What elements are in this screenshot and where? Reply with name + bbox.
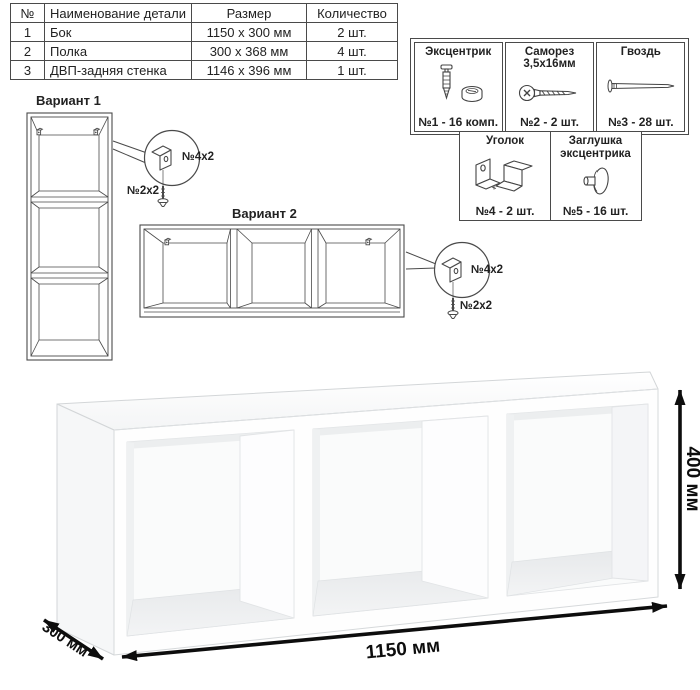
column-header-name: Наименование детали [45,4,192,23]
nail-icon [604,77,678,95]
variant2-title: Вариант 2 [232,206,297,221]
part-size: 1150 x 300 мм [192,23,307,42]
shelf-left-face [57,404,114,655]
callout2-screw-label: №2х2 [460,300,492,312]
table-row: 2 Полка 300 x 368 мм 4 шт. [11,42,398,61]
shelf-3d-render [57,372,658,655]
height-dimension-label: 400 мм [681,439,700,519]
screw-detail-icon [448,298,458,319]
screw-detail-icon [158,186,168,207]
callout1-screw-label: №2х2 [127,185,159,197]
hardware-title: Уголок [486,135,524,148]
assembly-instruction-sheet: № Наименование детали Размер Количество … [0,0,700,690]
part-qty: 2 шт. [307,23,398,42]
hardware-count: №5 - 16 шт. [563,204,629,218]
shelf-compartment [313,416,488,616]
hardware-cell-angle-bracket: Уголок №4 - 2 шт. [459,131,551,221]
hardware-box-row2: Уголок №4 - 2 шт. Заглушка эксцентрика [459,131,642,221]
column-header-size: Размер [192,4,307,23]
hardware-count: №3 - 28 шт. [608,115,674,129]
part-qty: 1 шт. [307,61,398,80]
part-name: Бок [45,23,192,42]
angle-bracket-icon [470,155,540,197]
cam-lock-icon [427,64,489,108]
part-num: 2 [11,42,45,61]
table-header-row: № Наименование детали Размер Количество [11,4,398,23]
hardware-count: №4 - 2 шт. [476,204,535,218]
table-row: 3 ДВП-задняя стенка 1146 x 396 мм 1 шт. [11,61,398,80]
hardware-count: №2 - 2 шт. [520,115,579,129]
callout2-bracket-label: №4х2 [471,264,503,276]
part-name: ДВП-задняя стенка [45,61,192,80]
right-inner-wall [612,404,648,581]
hardware-box: Эксцентрик №1 - 16 комп. Саморез 3,5 [410,38,689,135]
hardware-cell-screw: Саморез 3,5x16мм №2 - 2 шт. [505,42,594,132]
shelf-compartment [507,404,648,596]
part-num: 3 [11,61,45,80]
hardware-cell-cam-lock: Эксцентрик №1 - 16 комп. [414,42,503,132]
screw-icon [516,78,582,108]
variant2-drawing [140,225,490,319]
hardware-title: Саморез 3,5x16мм [508,46,591,71]
parts-table: № Наименование детали Размер Количество … [10,3,398,80]
part-num: 1 [11,23,45,42]
callout1-bracket-label: №4х2 [182,151,214,163]
divider-side-face [240,430,294,618]
variant1-title: Вариант 1 [36,93,101,108]
hardware-title: Гвоздь [621,46,661,59]
divider-side-face [422,416,488,598]
part-size: 1146 x 396 мм [192,61,307,80]
hardware-count: №1 - 16 комп. [418,115,498,129]
column-header-num: № [11,4,45,23]
hardware-cell-nail: Гвоздь №3 - 28 шт. [596,42,685,132]
part-size: 300 x 368 мм [192,42,307,61]
cam-cap-icon [568,162,624,202]
hardware-cell-cam-cap: Заглушка эксцентрика №5 - 16 шт. [550,131,642,221]
hardware-title: Заглушка эксцентрика [553,135,639,160]
table-row: 1 Бок 1150 x 300 мм 2 шт. [11,23,398,42]
part-qty: 4 шт. [307,42,398,61]
shelf-compartment [127,430,294,636]
part-name: Полка [45,42,192,61]
column-header-qty: Количество [307,4,398,23]
hardware-title: Эксцентрик [425,46,491,59]
